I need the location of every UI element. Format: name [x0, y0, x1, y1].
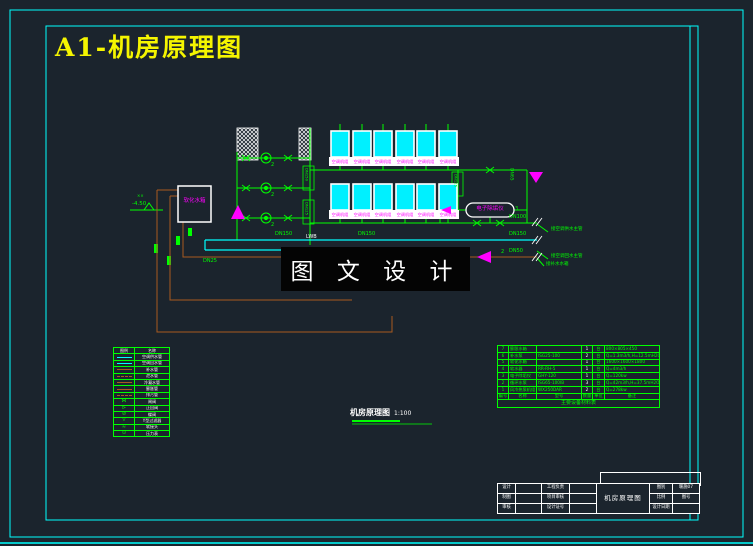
- legend-symbol-cell: [114, 425, 134, 430]
- unit-tag: 空调机组: [415, 158, 437, 166]
- caption-text: 机房原理图: [350, 407, 390, 418]
- legend-symbol-cell: [114, 380, 134, 385]
- pump-number: 2: [271, 193, 274, 198]
- legend-name: 止回阀: [135, 406, 169, 411]
- pump-number: 2: [501, 250, 504, 255]
- legend-symbol: [117, 406, 132, 411]
- legend-name: 空调回水管: [135, 361, 169, 366]
- legend-symbol-cell: [114, 418, 134, 423]
- valve-number: 3: [515, 207, 518, 212]
- legend-symbol: [117, 399, 132, 404]
- legend-name: 压力表: [135, 431, 169, 436]
- legend-name: Y型过滤器: [135, 418, 169, 423]
- unit-tag: 空调机组: [437, 158, 459, 166]
- pipe-label-dn50: DN50: [509, 249, 523, 254]
- title-block-drawing-name: 机房原理图: [597, 484, 649, 513]
- leader-return-main: 接空调回水主管: [551, 255, 583, 260]
- softener-tank-label: 软化水箱: [180, 199, 209, 205]
- legend-name: 排污管: [135, 393, 169, 398]
- pipe-label-dn150: DN150: [358, 232, 375, 237]
- legend-symbol: [117, 376, 132, 377]
- legend-symbol: [117, 395, 132, 396]
- cad-sheet: A1-机房原理图 机房原理图 1:100 图 文 设 计 空调机组 空调机组 空…: [0, 0, 753, 546]
- legend-symbol-cell: [114, 406, 134, 411]
- air-conditioning-units: [329, 131, 459, 219]
- legend-symbol: [117, 412, 132, 417]
- unit-tag: 空调机组: [394, 158, 416, 166]
- caption-underline: [352, 421, 432, 424]
- legend-name: 软接头: [135, 425, 169, 430]
- legend-symbol-cell: [114, 386, 134, 391]
- unit-tag: 空调机组: [372, 158, 394, 166]
- legend-symbol-cell: [114, 393, 134, 398]
- legend-symbol: [117, 382, 132, 383]
- legend-symbol-cell: [114, 354, 134, 359]
- riser-tag: DN150: [305, 168, 309, 181]
- unit-tag: 空调机组: [372, 211, 394, 219]
- legend-symbol: [117, 425, 132, 430]
- legend-symbol-cell: [114, 367, 134, 372]
- pipe-label-dn25: DN25: [203, 259, 217, 264]
- drawing-caption: 机房原理图 1:100: [350, 407, 411, 418]
- pipe-label-dn100: DN100: [509, 215, 526, 220]
- legend-name: 泄水管: [135, 374, 169, 379]
- pipe-label-dn150: DN150: [275, 232, 292, 237]
- unit-tag: 空调机组: [415, 211, 437, 219]
- elevation-label: -4.50: [132, 202, 146, 208]
- legend-name: 补水管: [135, 367, 169, 372]
- legend-symbol: [117, 369, 132, 370]
- legend-name: 蝶阀: [135, 412, 169, 417]
- leader-supply-main: 接空调供水主管: [551, 228, 583, 233]
- unit-tag: 空调机组: [394, 211, 416, 219]
- descaler-label: 电子除垢仪: [467, 207, 513, 213]
- unit-tag: 空调机组: [437, 211, 459, 219]
- watermark: 图 文 设 计: [281, 247, 470, 291]
- legend-symbol: [117, 389, 132, 390]
- title-block: 设计 工程负责 机房原理图 图别 暖施07 制图 项目审核 比例 图号 审核 设…: [497, 483, 700, 514]
- pump-number: 2: [271, 163, 274, 168]
- riser-tag: DN125: [305, 202, 309, 215]
- riser-tag: DN125: [454, 174, 458, 187]
- legend-symbol: [117, 431, 132, 436]
- pipe-label-dn150: DN150: [509, 232, 526, 237]
- legend-name: 空调供水管: [135, 354, 169, 359]
- caption-scale: 1:100: [394, 410, 411, 417]
- legend-symbol: [117, 363, 132, 364]
- legend-name: 冷凝水管: [135, 380, 169, 385]
- equipment-table-caption: 主要设备材料表: [498, 400, 659, 407]
- pipe-label-dn65: DN65: [508, 168, 513, 181]
- legend-symbol: [117, 418, 132, 423]
- equipment-table: 7膨胀水箱1台800×805×450 6补水泵ISG25-1002台Q=1.3m…: [497, 345, 660, 408]
- legend-symbol-cell: [114, 431, 134, 436]
- unit-tag: 空调机组: [351, 211, 373, 219]
- leader-makeup-tank: 接补水水箱: [546, 263, 569, 268]
- legend-symbol-cell: [114, 374, 134, 379]
- unit-tag: 空调机组: [351, 158, 373, 166]
- legend-table: 图例 名称 空调供水管 空调回水管 补水管 泄水管 冷凝水管 膨胀管 排污管 闸…: [113, 347, 170, 437]
- unit-tag: 空调机组: [329, 158, 351, 166]
- legend-header-symbol: 图例: [114, 348, 134, 353]
- pump-number: 2: [271, 223, 274, 228]
- unit-tag: 空调机组: [329, 211, 351, 219]
- line-tag: LWB: [306, 235, 317, 240]
- valve-blocks: [154, 228, 192, 265]
- legend-symbol-cell: [114, 361, 134, 366]
- legend-symbol-cell: [114, 412, 134, 417]
- tick-marks: ××: [137, 194, 144, 198]
- sheet-title: A1-机房原理图: [55, 28, 243, 64]
- legend-symbol-cell: [114, 399, 134, 404]
- legend-header-name: 名称: [135, 348, 169, 353]
- legend-name: 膨胀管: [135, 386, 169, 391]
- wall-hatch: [237, 128, 311, 160]
- legend-name: 闸阀: [135, 399, 169, 404]
- legend-symbol: [117, 357, 132, 358]
